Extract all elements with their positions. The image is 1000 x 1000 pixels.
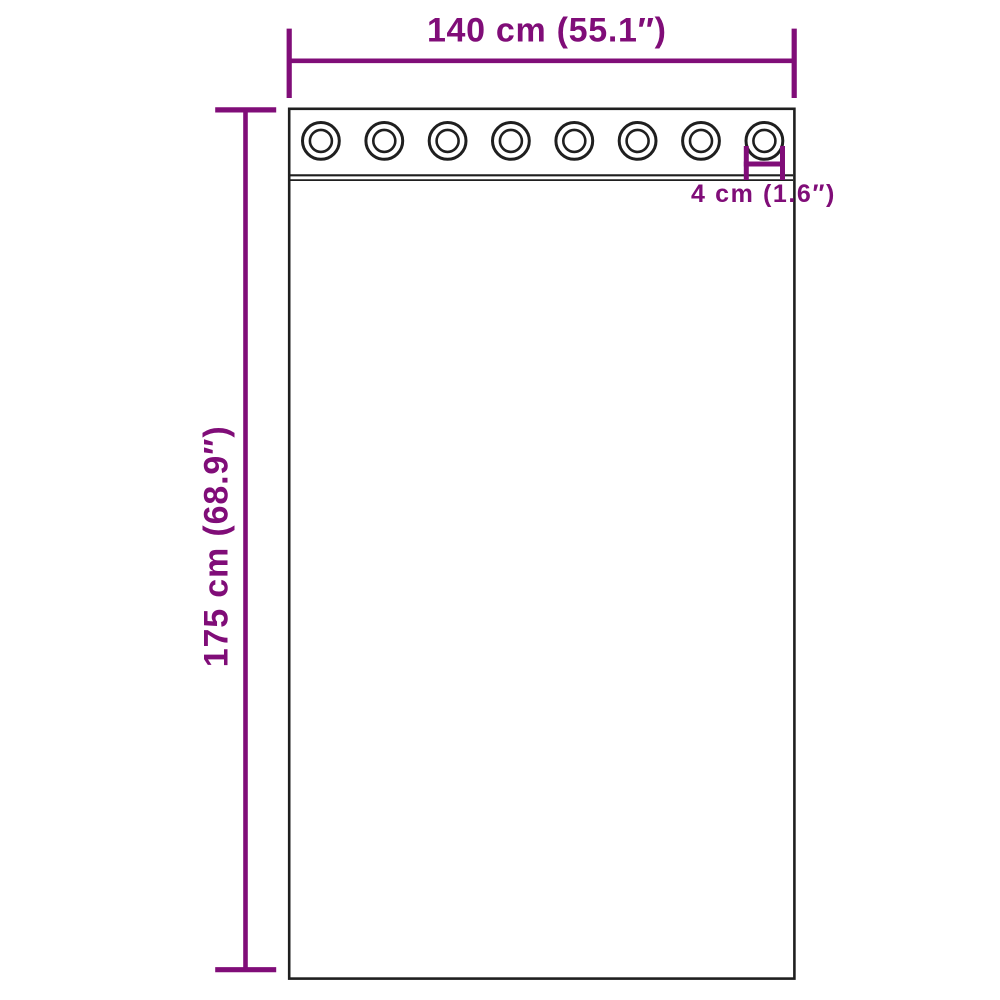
svg-text:4 cm (1.6″): 4 cm (1.6″) <box>691 180 836 208</box>
svg-text:175 cm (68.9″): 175 cm (68.9″) <box>197 426 235 668</box>
svg-text:140 cm (55.1″): 140 cm (55.1″) <box>427 11 667 49</box>
